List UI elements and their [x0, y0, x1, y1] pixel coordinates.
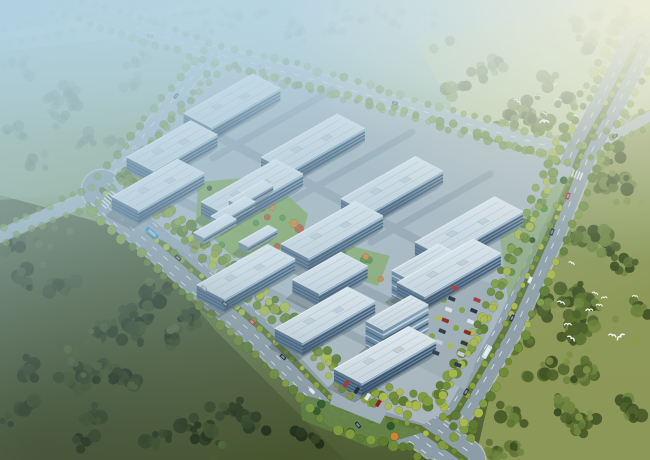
tree [164, 223, 171, 230]
rendering-canvas [0, 0, 650, 460]
forest-tree [638, 199, 644, 205]
tree [280, 302, 290, 312]
tree [305, 82, 313, 90]
forest-tree [610, 262, 620, 272]
tree [2, 27, 7, 32]
tree [117, 9, 123, 15]
tree [183, 64, 191, 72]
tree [498, 119, 505, 126]
tree [109, 184, 116, 191]
forest-tree [42, 164, 49, 171]
tree [23, 213, 30, 220]
forest-tree [381, 13, 389, 21]
tree [50, 217, 57, 224]
forest-tree [53, 372, 65, 384]
forest-tree [119, 83, 129, 93]
forest-tree [291, 17, 296, 22]
tree [218, 43, 225, 50]
tree [469, 420, 479, 430]
median-tree [503, 320, 509, 326]
forest-tree [22, 354, 30, 362]
tree [304, 63, 311, 70]
tree [567, 140, 573, 146]
forest-tree [611, 242, 620, 251]
median-tree [517, 291, 523, 297]
tree [564, 159, 570, 165]
forest-tree [498, 62, 508, 72]
tree [445, 127, 451, 133]
tree [209, 262, 217, 270]
tree [96, 216, 106, 226]
forest-tree [546, 357, 554, 365]
tree [631, 88, 639, 96]
forest-tree [186, 315, 192, 321]
tree [379, 437, 389, 447]
median-tree [625, 61, 630, 66]
parking-tree [453, 325, 459, 331]
tree [211, 250, 218, 257]
median-tree [451, 448, 457, 454]
tree [186, 53, 192, 59]
tree [344, 91, 352, 99]
tree [265, 298, 272, 305]
forest-tree [17, 267, 26, 276]
median-tree [476, 374, 481, 379]
forest-tree [72, 360, 79, 367]
tree [460, 418, 469, 427]
tree [474, 321, 482, 329]
median-tree [578, 153, 584, 159]
forest-tree [388, 18, 398, 28]
tree [225, 65, 232, 72]
tree [385, 383, 393, 391]
tree [613, 28, 620, 35]
forest-tree [575, 34, 583, 42]
forest-tree [520, 419, 529, 428]
forest-tree [236, 8, 243, 15]
tree [638, 78, 645, 85]
forest-tree [357, 17, 364, 24]
tree [64, 15, 71, 22]
median-tree [511, 303, 518, 310]
tree [438, 441, 447, 450]
tree [231, 46, 239, 54]
forest-tree [25, 160, 36, 171]
tree [13, 231, 20, 238]
forest-tree [496, 401, 505, 410]
forest-tree [80, 136, 88, 144]
forest-tree [563, 359, 570, 366]
tree [537, 299, 545, 307]
tree [261, 362, 268, 369]
tree [525, 321, 532, 328]
tree [386, 90, 393, 97]
tree [270, 74, 276, 80]
tree [486, 391, 496, 401]
forest-tree [130, 83, 138, 91]
forest-tree [118, 305, 127, 314]
tree [88, 206, 98, 216]
tree [503, 267, 511, 275]
tree [487, 288, 495, 296]
parking-tree [447, 343, 453, 349]
tree [5, 40, 11, 46]
tree [160, 272, 167, 279]
tree [577, 90, 584, 97]
tree [461, 111, 467, 117]
forest-tree [587, 319, 601, 333]
tree [471, 113, 477, 119]
forest-tree [145, 278, 154, 287]
forest-tree [587, 410, 593, 416]
forest-tree [297, 27, 306, 36]
tree [592, 165, 600, 173]
tree [429, 116, 436, 123]
forest-tree [620, 183, 633, 196]
parking-tree [459, 307, 465, 313]
tree [435, 103, 443, 111]
forest-tree [63, 345, 72, 354]
tree [91, 1, 98, 8]
tree [600, 47, 610, 57]
median-tree [616, 82, 622, 88]
garden-tree [207, 186, 212, 191]
median-tree [494, 343, 500, 349]
forest-tree [640, 304, 647, 311]
tree [28, 225, 35, 232]
tree [568, 220, 576, 228]
tree [340, 73, 349, 82]
tree [141, 116, 147, 122]
forest-tree [552, 72, 560, 80]
forest-tree [147, 313, 154, 320]
tree [190, 10, 196, 16]
median-tree [266, 333, 271, 338]
forest-tree [159, 429, 168, 438]
tree [153, 264, 162, 273]
parking-tree [435, 315, 441, 321]
forest-tree [41, 150, 49, 158]
median-tree [256, 325, 263, 332]
tree [527, 195, 535, 203]
tree [196, 89, 203, 96]
tree [579, 202, 588, 211]
forest-tree [204, 424, 219, 439]
tree [366, 435, 376, 445]
forest-tree [578, 423, 585, 430]
tree [16, 26, 21, 31]
forest-tree [218, 21, 224, 27]
tree [594, 59, 602, 67]
median-tree [620, 72, 627, 79]
tree [332, 354, 341, 363]
forest-tree [231, 24, 241, 34]
tree [603, 128, 610, 135]
garden-tree [317, 400, 325, 408]
tree [190, 89, 196, 95]
tree [18, 37, 25, 44]
tree [560, 247, 568, 255]
tree [126, 11, 132, 17]
garden-tree [290, 219, 298, 227]
tree [644, 67, 650, 75]
tree [112, 23, 118, 29]
tree [200, 47, 207, 54]
forest-tree [397, 24, 402, 29]
forest-tree [506, 419, 515, 428]
forest-tree [311, 434, 321, 444]
tree [413, 452, 421, 460]
forest-tree [517, 449, 524, 456]
forest-tree [612, 315, 619, 322]
tree [47, 204, 53, 210]
garden-tree [280, 215, 286, 221]
tree [317, 363, 325, 371]
tree [544, 278, 552, 286]
forest-tree [461, 81, 471, 91]
tree [498, 282, 506, 290]
tree [551, 156, 559, 164]
tree [540, 286, 550, 296]
tree [476, 329, 482, 335]
tree [231, 62, 238, 69]
tree [395, 406, 403, 414]
tree [549, 176, 557, 184]
tree [269, 369, 279, 379]
tree [172, 282, 179, 289]
forest-tree [261, 425, 271, 435]
tree [246, 49, 253, 56]
tree [123, 143, 129, 149]
tree [158, 94, 165, 101]
tree [425, 101, 432, 108]
tree [442, 382, 450, 390]
forest-tree [261, 8, 268, 15]
tree [492, 383, 501, 392]
tree [219, 5, 226, 12]
forest-tree [66, 227, 73, 234]
tree [376, 102, 384, 110]
garden-tree [560, 177, 567, 184]
forest-tree [80, 412, 94, 426]
tree [36, 206, 42, 212]
tree [313, 68, 322, 77]
tree [640, 127, 646, 133]
tree [197, 80, 203, 86]
median-tree [499, 333, 505, 339]
forest-tree [550, 302, 557, 309]
forest-tree [595, 15, 602, 22]
tree [227, 328, 235, 336]
tree [575, 211, 583, 219]
forest-tree [152, 295, 167, 310]
median-tree [630, 48, 637, 55]
tree [439, 391, 448, 400]
tree [355, 78, 362, 85]
tree [638, 109, 644, 115]
forest-tree [131, 56, 139, 64]
tree [449, 422, 457, 430]
median-tree [321, 389, 326, 394]
tree [413, 112, 420, 119]
tree [449, 120, 457, 128]
forest-tree [94, 362, 103, 371]
tree [461, 127, 468, 134]
forest-tree [73, 384, 85, 396]
tree [50, 10, 56, 16]
forest-tree [488, 61, 496, 69]
forest-tree [347, 15, 354, 22]
tree [94, 173, 101, 180]
forest-tree [542, 81, 554, 93]
forest-tree [10, 124, 18, 132]
median-tree [313, 382, 319, 388]
tree [259, 69, 266, 76]
tree [242, 342, 253, 353]
tree [318, 85, 325, 92]
tree [563, 236, 570, 243]
tree [270, 54, 278, 62]
forest-tree [563, 376, 571, 384]
tree [75, 208, 82, 215]
forest-tree [554, 408, 562, 416]
tree [104, 9, 110, 15]
median-tree [609, 91, 616, 98]
tree [376, 85, 384, 93]
tree [587, 95, 593, 101]
forest-tree [537, 71, 548, 82]
forest-tree [102, 376, 109, 383]
tree [151, 0, 158, 7]
forest-tree [94, 417, 102, 425]
garden-tree [553, 202, 559, 208]
tree [489, 304, 497, 312]
tree [583, 82, 589, 88]
median-tree [481, 360, 488, 367]
tree [576, 143, 583, 150]
forest-tree [76, 445, 85, 454]
tree [423, 396, 433, 406]
tree [627, 100, 634, 107]
tree [95, 199, 102, 206]
tree [150, 17, 156, 23]
forest-tree [572, 310, 581, 319]
forest-tree [81, 372, 87, 378]
tree [128, 33, 137, 42]
tree [206, 79, 212, 85]
tree [86, 202, 91, 207]
tree [203, 70, 211, 78]
tree [436, 117, 445, 126]
tree [270, 305, 280, 315]
tree [272, 296, 279, 303]
garden-tree [362, 253, 369, 260]
forest-tree [71, 85, 80, 94]
tree [163, 124, 170, 131]
tree [571, 104, 578, 111]
forest-tree [42, 94, 52, 104]
tree [532, 184, 540, 192]
tree [467, 434, 476, 443]
tree [135, 17, 142, 24]
forest-tree [159, 289, 166, 296]
forest-tree [632, 259, 639, 266]
forest-tree [91, 402, 98, 409]
tree [282, 380, 289, 387]
tree [496, 293, 502, 299]
tree [505, 142, 512, 149]
tree [388, 441, 399, 452]
forest-tree [173, 418, 188, 433]
tree [178, 288, 185, 295]
tree [127, 132, 136, 141]
tree [163, 44, 170, 51]
tree [124, 21, 130, 27]
tree [629, 131, 634, 136]
tree [610, 144, 616, 150]
forest-tree [72, 436, 81, 445]
forest-tree [590, 232, 600, 242]
tree [516, 145, 522, 151]
forest-tree [510, 442, 518, 450]
tree [406, 443, 414, 451]
forest-tree [72, 349, 80, 357]
forest-tree [527, 114, 537, 124]
tree [177, 73, 185, 81]
forest-tree [27, 400, 33, 406]
tree [559, 123, 569, 133]
forest-tree [122, 61, 131, 70]
tree [168, 85, 175, 92]
tree [70, 191, 76, 197]
tree [173, 13, 180, 20]
forest-tree [236, 397, 244, 405]
tree [288, 385, 298, 395]
tree [233, 336, 243, 346]
garden-tree [253, 220, 259, 226]
tree [439, 413, 447, 421]
tree [283, 58, 290, 65]
forest-tree [282, 30, 292, 40]
forest-tree [486, 439, 493, 446]
tree [356, 95, 363, 102]
tree [13, 217, 19, 223]
tree [187, 97, 195, 105]
tree [168, 115, 176, 123]
forest-tree [339, 27, 347, 35]
tree [499, 368, 508, 377]
forest-tree [583, 366, 591, 374]
forest-tree [100, 323, 109, 332]
tree [401, 107, 408, 114]
tree [160, 22, 167, 29]
forest-tree [166, 326, 174, 334]
tree [136, 122, 144, 130]
tree [540, 150, 546, 156]
tree [3, 239, 10, 246]
tree [39, 222, 47, 230]
median-tree [469, 383, 476, 390]
tree [552, 139, 559, 146]
tree [526, 146, 534, 154]
tree [39, 21, 45, 27]
forest-tree [491, 69, 498, 76]
forest-tree [47, 244, 53, 250]
forest-tree [26, 284, 33, 291]
tree [0, 223, 8, 231]
median-tree [188, 268, 193, 273]
forest-tree [375, 10, 382, 17]
